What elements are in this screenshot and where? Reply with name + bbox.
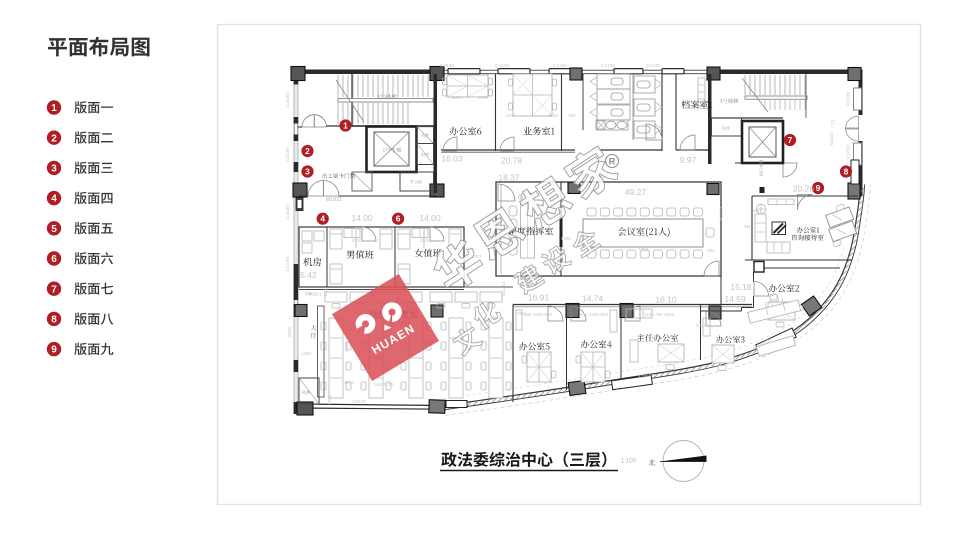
svg-text:4: 4 [320, 214, 325, 224]
svg-text:C1230: C1230 [601, 63, 615, 69]
svg-text:C1530: C1530 [285, 93, 291, 107]
svg-text:1000: 1000 [478, 95, 489, 100]
svg-text:4: 4 [51, 194, 57, 205]
svg-text:3: 3 [51, 164, 57, 175]
svg-text:C1530: C1530 [285, 148, 291, 162]
svg-text:7200: 7200 [638, 247, 649, 252]
svg-text:W1223: W1223 [719, 206, 724, 221]
svg-text:6: 6 [51, 254, 57, 265]
svg-text:500 1730: 500 1730 [374, 382, 394, 387]
svg-text:14.59: 14.59 [724, 294, 746, 304]
svg-text:C1230: C1230 [646, 63, 660, 69]
svg-text:16.10: 16.10 [655, 295, 677, 305]
svg-text:960: 960 [744, 224, 752, 229]
svg-text:16.03: 16.03 [441, 154, 463, 164]
svg-text:1600: 1600 [327, 395, 332, 405]
svg-text:1160: 1160 [695, 323, 705, 328]
svg-text:1500: 1500 [548, 113, 559, 118]
svg-text:1450: 1450 [301, 351, 312, 356]
svg-text:900: 900 [753, 208, 761, 213]
svg-text:18.37: 18.37 [498, 173, 520, 183]
svg-text:49.27: 49.27 [625, 187, 647, 197]
svg-text:14.74: 14.74 [582, 294, 604, 304]
svg-text:2: 2 [305, 146, 310, 156]
svg-text:W1223: W1223 [501, 281, 506, 296]
svg-text:C1530: C1530 [285, 257, 291, 271]
svg-text:3600: 3600 [344, 342, 349, 352]
svg-text:1000: 1000 [323, 287, 328, 297]
svg-text:14.00: 14.00 [351, 213, 373, 223]
svg-text:M1521: M1521 [829, 132, 834, 146]
svg-text:20.26: 20.26 [793, 184, 815, 194]
svg-text:3: 3 [305, 167, 310, 177]
svg-text:C1230: C1230 [553, 63, 567, 69]
svg-text:C1830: C1830 [846, 145, 852, 159]
svg-text:20.78: 20.78 [501, 156, 523, 166]
svg-text:450: 450 [568, 113, 576, 118]
svg-text:8: 8 [51, 315, 57, 326]
svg-text:FM0921: FM0921 [305, 292, 322, 297]
svg-text:M1821: M1821 [326, 197, 342, 203]
svg-text:14.00: 14.00 [419, 213, 441, 223]
svg-text:7: 7 [788, 135, 793, 145]
svg-text:5.42: 5.42 [300, 270, 317, 280]
svg-text:900 1400 950: 900 1400 950 [524, 312, 553, 317]
svg-text:9: 9 [51, 345, 57, 356]
svg-text:9: 9 [816, 183, 821, 193]
svg-text:1190 790 1000: 1190 790 1000 [644, 312, 675, 317]
svg-text:940 1400 900: 940 1400 900 [580, 312, 609, 317]
svg-text:C1530: C1530 [846, 92, 852, 106]
svg-text:7: 7 [51, 284, 57, 295]
svg-text:1200: 1200 [505, 113, 516, 118]
svg-text:7200: 7200 [355, 226, 366, 231]
svg-text:900: 900 [707, 248, 715, 253]
svg-text:8: 8 [844, 167, 849, 177]
svg-text:2200: 2200 [420, 238, 431, 243]
svg-text:1:100: 1:100 [621, 459, 637, 465]
svg-text:C2430: C2430 [440, 63, 454, 69]
svg-text:3210: 3210 [344, 380, 355, 385]
svg-text:15.18: 15.18 [730, 282, 752, 292]
svg-text:9.97: 9.97 [680, 155, 697, 165]
svg-text:2: 2 [51, 133, 57, 144]
svg-text:C1530: C1530 [285, 205, 291, 219]
svg-text:6: 6 [396, 214, 401, 224]
svg-text:R: R [609, 157, 616, 167]
svg-text:1: 1 [343, 121, 348, 131]
svg-text:1: 1 [51, 103, 57, 114]
svg-text:C5530: C5530 [351, 399, 365, 405]
svg-text:C2430: C2430 [495, 63, 509, 69]
svg-text:2200: 2200 [352, 238, 363, 243]
svg-text:1350: 1350 [561, 236, 572, 241]
svg-text:5600: 5600 [287, 327, 292, 337]
svg-text:16.91: 16.91 [528, 293, 550, 303]
svg-text:1100: 1100 [451, 95, 461, 100]
svg-text:5: 5 [51, 224, 57, 235]
